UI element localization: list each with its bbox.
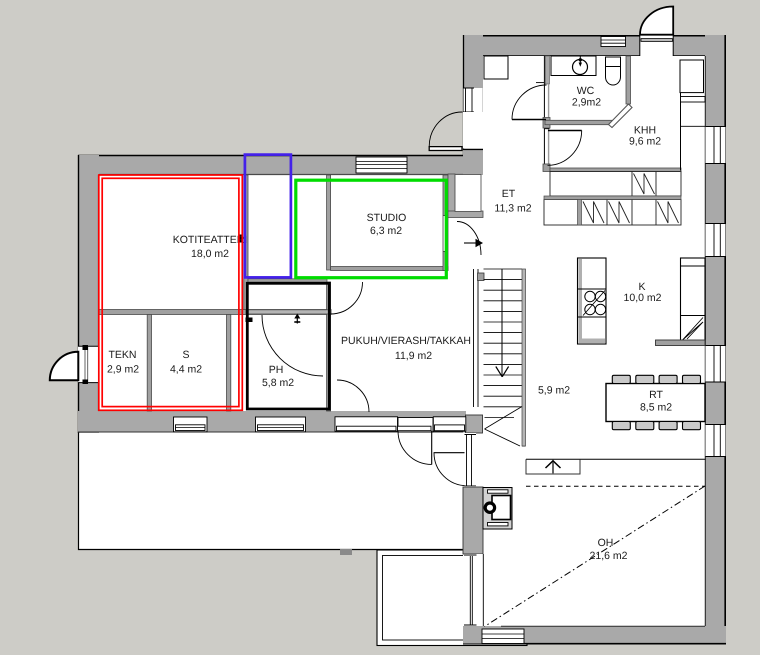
svg-text:OH: OH: [598, 537, 614, 549]
svg-text:PUKUH/VIERASH/TAKKAH: PUKUH/VIERASH/TAKKAH: [341, 335, 471, 347]
svg-text:6,3 m2: 6,3 m2: [370, 225, 402, 237]
svg-text:9,6 m2: 9,6 m2: [629, 135, 661, 147]
svg-text:8,5 m2: 8,5 m2: [640, 401, 672, 413]
svg-text:S: S: [182, 349, 189, 361]
svg-text:2,9 m2: 2,9 m2: [107, 363, 139, 375]
svg-text:18,0 m2: 18,0 m2: [191, 248, 229, 260]
svg-text:2,9m2: 2,9m2: [572, 96, 601, 108]
svg-text:TEKN: TEKN: [108, 349, 136, 361]
svg-text:11,9 m2: 11,9 m2: [395, 350, 432, 362]
svg-text:ET: ET: [502, 188, 516, 200]
svg-text:PH: PH: [269, 364, 284, 376]
svg-text:4,4 m2: 4,4 m2: [170, 363, 202, 375]
svg-text:10,0 m2: 10,0 m2: [624, 292, 662, 304]
svg-text:5,8 m2: 5,8 m2: [262, 377, 294, 389]
svg-text:KOTITEATTERI: KOTITEATTERI: [173, 234, 247, 246]
svg-text:21,6 m2: 21,6 m2: [590, 550, 628, 562]
svg-text:11,3 m2: 11,3 m2: [494, 202, 531, 214]
svg-text:5,9 m2: 5,9 m2: [538, 384, 570, 396]
svg-text:WC: WC: [577, 85, 595, 97]
svg-text:STUDIO: STUDIO: [367, 212, 407, 224]
svg-text:RT: RT: [649, 389, 663, 401]
